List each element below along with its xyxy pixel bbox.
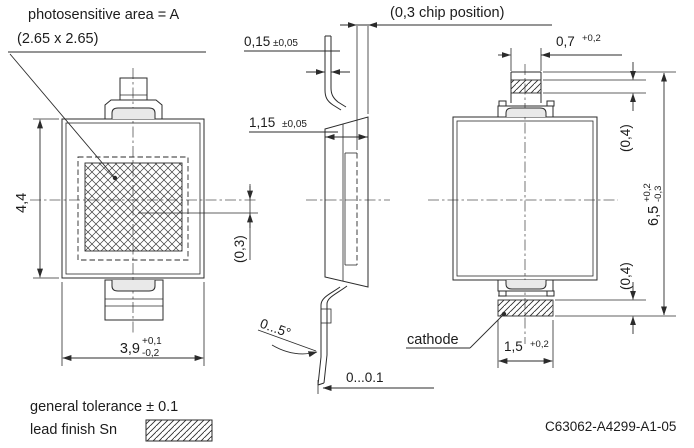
dim-lead-protrusion-bottom: (0,4) — [555, 262, 646, 334]
dim-body-width-tol-plus: +0,1 — [142, 336, 162, 347]
dim-body-thickness-tol: ±0,05 — [282, 119, 307, 130]
dim-top-lead-width-label: 0,7 — [556, 34, 575, 49]
dim-lead-protrusion-bottom-label: (0,4) — [618, 262, 633, 290]
dim-total-height-tol-minus: -0,3 — [653, 186, 664, 202]
side-view: (0,3 chip position) 0,15 ±0,05 1,15 ±0,0… — [244, 5, 552, 394]
dim-coplanarity-label: 0...0.1 — [346, 370, 384, 385]
dim-lead-thickness-label: 0,15 — [244, 34, 270, 49]
dim-body-thickness-label: 1,15 — [249, 115, 275, 130]
side-body-outline — [325, 117, 368, 287]
dim-lead-thickness-tol: ±0,05 — [273, 38, 298, 49]
dim-lead-angle: 0...5° — [258, 316, 317, 354]
dim-body-width-label: 3,9 — [120, 341, 140, 357]
footer-notes: general tolerance ± 0.1 lead finish Sn C… — [30, 399, 676, 441]
dim-top-lead-width: 0,7 +0,2 — [498, 33, 622, 71]
cathode-callout: cathode — [406, 312, 506, 348]
dim-chip-position: (0,3 chip position) — [340, 5, 552, 150]
dim-total-height-label: 6,5 — [646, 206, 662, 226]
photosensitive-area-hatch — [85, 163, 182, 251]
front-view: 4,4 3,9 +0,1 -0,2 (0,3) photosensitive a… — [8, 7, 258, 366]
dim-body-height: 4,4 — [14, 119, 59, 278]
cathode-label: cathode — [407, 332, 459, 348]
dim-total-height-tol-plus: +0,2 — [642, 183, 653, 202]
side-top-lead — [325, 36, 346, 110]
photosensitive-label-line1: photosensitive area = A — [28, 7, 179, 23]
front-bottom-terminal — [105, 280, 163, 320]
dim-top-lead-width-tol-plus: +0,2 — [582, 33, 601, 44]
dim-lead-protrusion-top-label: (0,4) — [618, 124, 633, 152]
chip-position-label: (0,3 chip position) — [390, 5, 504, 21]
back-bottom-lead — [498, 280, 554, 316]
dim-body-width-tol-minus: -0,2 — [142, 348, 160, 359]
cathode-hatch — [498, 300, 553, 316]
dim-chip-offset-label: (0,3) — [232, 235, 247, 263]
dim-cathode-width-label: 1,5 — [504, 339, 523, 354]
dim-cathode-width: 1,5 +0,2 — [498, 320, 553, 368]
dim-cathode-width-tol-plus: +0,2 — [530, 339, 549, 350]
front-top-terminal — [105, 78, 162, 119]
lead-finish-hatch-legend — [146, 420, 212, 441]
dim-body-thickness: 1,15 ±0,05 — [249, 115, 368, 137]
component-drawing: 4,4 3,9 +0,1 -0,2 (0,3) photosensitive a… — [0, 0, 694, 448]
dim-lead-protrusion-top: (0,4) — [543, 62, 646, 152]
dim-body-height-label: 4,4 — [14, 193, 30, 213]
dim-total-height: 6,5 +0,2 -0,3 — [543, 72, 676, 316]
back-view: cathode 1,5 +0,2 0,7 +0,2 — [406, 33, 676, 368]
dim-lead-thickness: 0,15 ±0,05 — [244, 34, 350, 72]
side-bottom-lead — [318, 286, 347, 385]
dim-lead-angle-label: 0...5° — [258, 316, 293, 341]
dim-coplanarity: 0...0.1 — [318, 370, 434, 394]
photosensitive-label-line2: (2.65 x 2.65) — [17, 31, 98, 47]
side-chip-outline — [345, 153, 357, 265]
general-tolerance-note: general tolerance ± 0.1 — [30, 399, 178, 415]
back-top-lead-finish-hatch — [511, 80, 541, 93]
back-top-lead — [498, 72, 554, 117]
technical-drawing-page: 4,4 3,9 +0,1 -0,2 (0,3) photosensitive a… — [0, 0, 694, 448]
document-number: C63062-A4299-A1-05 — [545, 419, 676, 434]
photosensitive-leader — [8, 52, 206, 180]
lead-finish-note: lead finish Sn — [30, 422, 117, 438]
